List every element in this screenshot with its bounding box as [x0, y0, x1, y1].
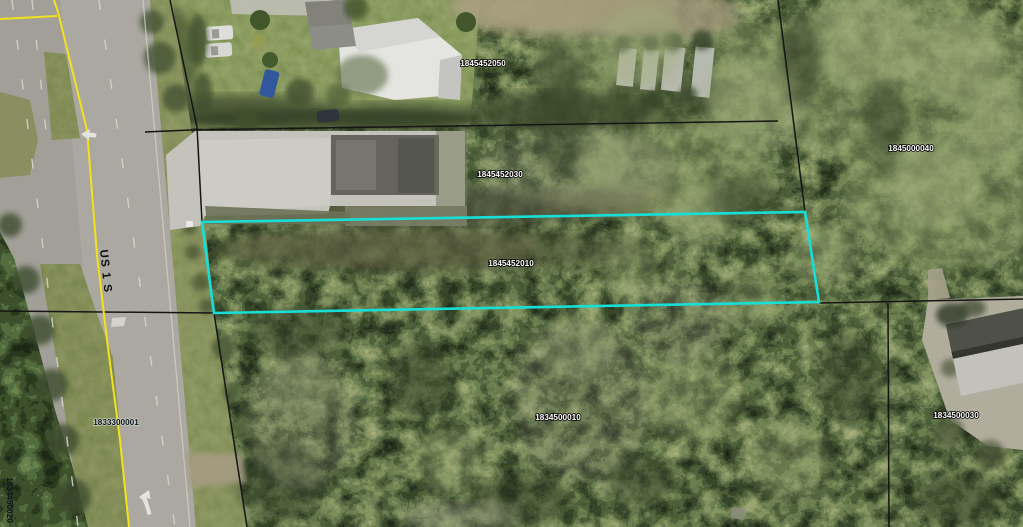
svg-text:1845452030: 1845452030 [477, 170, 523, 179]
svg-text:1833300001: 1833300001 [93, 418, 139, 427]
svg-text:1834450020: 1834450020 [5, 477, 14, 523]
svg-text:1834500010: 1834500010 [535, 413, 581, 422]
svg-text:1845452050: 1845452050 [460, 59, 506, 68]
svg-text:1845000040: 1845000040 [888, 144, 934, 153]
svg-text:1845452010: 1845452010 [488, 259, 534, 268]
svg-text:1834500030: 1834500030 [933, 411, 979, 420]
